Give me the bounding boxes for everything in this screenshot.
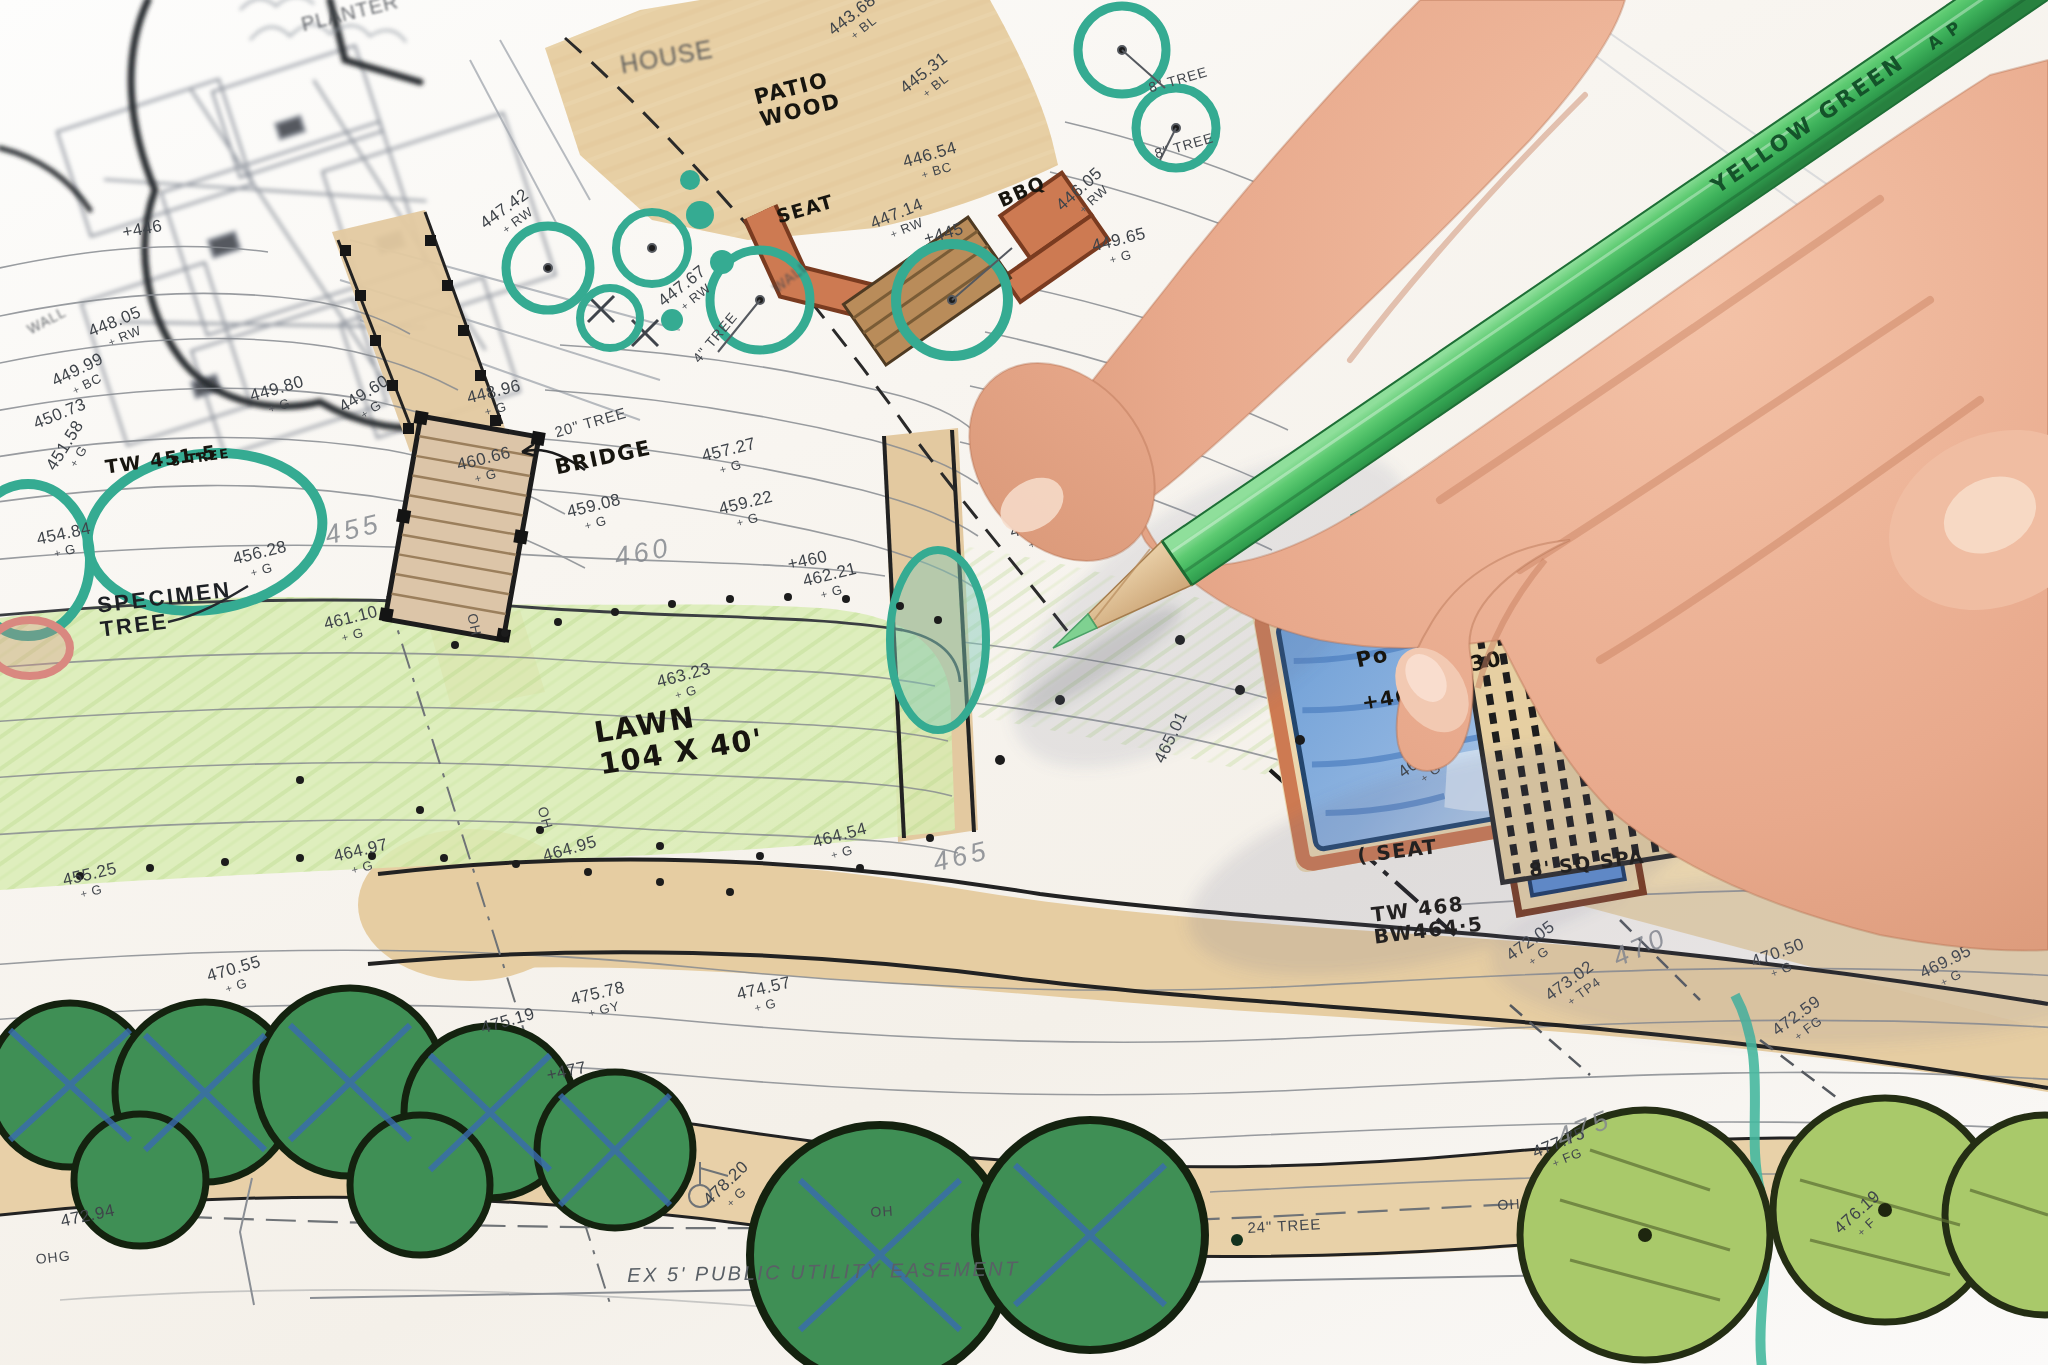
seat-wall	[760, 212, 872, 302]
contour-label: 460	[612, 532, 674, 573]
plan-label: Po	[1354, 643, 1391, 672]
site-plan-drawing	[0, 0, 2048, 1365]
spot-elevation: 475.19	[479, 1004, 537, 1036]
thumb-nail	[1380, 634, 1484, 746]
spot-elevation: 447.42+RW	[477, 186, 540, 244]
spot-elevation: 447.67+RW	[655, 262, 718, 321]
spot-elevation: 449.99+BC	[49, 350, 112, 403]
planter-scallops	[240, 0, 406, 42]
trellis-label-arrow	[1600, 700, 1672, 748]
plan-label: 8" TREE	[1147, 64, 1210, 96]
spot-elevation: 445.31+BL	[897, 49, 960, 108]
contour-label: 475	[1552, 1103, 1617, 1153]
patio-area	[545, 0, 1058, 240]
index-finger	[1015, 0, 1625, 536]
plan-label: ( SEAT	[1356, 835, 1439, 867]
hand-and-pencil: YELLOW GREEN A P	[0, 0, 2048, 1365]
plan-label: LAWN 104 X 40'	[592, 692, 766, 781]
bottom-path-band	[372, 858, 2048, 1092]
spot-elevation: 448.96+G	[465, 377, 526, 421]
path-below-bridge	[430, 610, 545, 710]
plan-label: SEAT	[774, 191, 836, 227]
spot-elevation: 463.71+G	[1395, 735, 1458, 793]
dashed-lines	[140, 38, 2048, 1310]
sheet-edge-lines	[1520, 0, 2048, 390]
spot-elevation: 443.68+BL	[825, 0, 888, 50]
bridge-label-arrow	[522, 444, 585, 470]
spot-elevation: 457.27+G	[700, 434, 761, 478]
spot-elevation: 460.85+G	[1008, 509, 1070, 555]
plan-label: TW 468 BW464·5	[1370, 890, 1485, 947]
spot-elevation: 476.19+F	[1831, 1188, 1893, 1249]
lawn-area	[0, 545, 1335, 890]
pencil-stamp-text: A P	[1923, 16, 1965, 54]
spot-elevation: 477.75+FG	[1530, 1125, 1593, 1175]
plan-label: 8 TREE	[170, 446, 231, 468]
pencil-wood	[1088, 541, 1192, 628]
spot-elevation: 450.73	[31, 396, 88, 432]
pool	[1251, 555, 1598, 874]
spot-elevation: 449.60+G	[336, 372, 400, 428]
fence-x-marks	[588, 296, 658, 346]
path-to-bridge	[332, 210, 505, 452]
spot-elevation: 457.27+G	[1098, 433, 1159, 477]
plan-label: OH	[464, 612, 484, 638]
driveway-lines	[340, 40, 680, 420]
spot-elevation: 454.84+G	[35, 520, 95, 563]
plan-label: TRELLIS 20X10	[1671, 709, 1777, 767]
plan-label: SPECIMEN TREE	[96, 577, 236, 641]
spot-elevation: +477	[545, 1059, 588, 1084]
plan-label: 55 PG	[1563, 0, 1615, 42]
spot-elevation: 459.22+G	[717, 488, 778, 532]
pencil-brand-text: YELLOW GREEN	[1706, 49, 1910, 199]
spot-elevation: +460	[786, 547, 829, 572]
spot-elevation: 472.59+FG	[1769, 993, 1832, 1051]
dark-trees-center	[750, 1120, 1205, 1365]
plan-label: EX 5' PUBLIC UTILITY EASEMENT	[627, 1257, 1020, 1286]
lawn-top-boundary	[0, 600, 960, 682]
spot-elevation: 472.05+G	[1503, 918, 1566, 976]
plan-label: 24" TREE	[1247, 1216, 1322, 1236]
specimen-leader	[168, 586, 248, 622]
spot-elevation: 469.95+G	[1917, 942, 1980, 995]
spa	[1499, 778, 1643, 914]
hedge-row	[0, 988, 693, 1255]
pencil-body	[1162, 0, 2048, 585]
path-bulge	[358, 829, 582, 981]
index-fingertip	[931, 326, 1193, 597]
contour-label: 465	[930, 835, 993, 878]
planting-dots	[76, 593, 1305, 896]
plan-label: PLANTER	[299, 0, 401, 35]
plan-label: OHG	[35, 1248, 71, 1267]
spot-elevation: 462.21+G	[801, 560, 862, 604]
spot-elevation: 447.14+RW	[868, 195, 931, 245]
plan-label: 8" TREE	[1153, 131, 1216, 163]
bridge	[379, 410, 546, 643]
deck-right	[1560, 600, 2048, 1030]
spot-elevation: 465.01	[1151, 708, 1190, 765]
spot-elevation: 456.28+G	[231, 538, 292, 582]
spot-elevation: 470.50+G	[1749, 935, 1812, 984]
palm-and-fingers	[1139, 60, 2048, 951]
spot-elevation: 475.78+GY	[569, 979, 630, 1023]
bbq-counter	[973, 173, 1109, 302]
spot-elevation: 448.05+RW	[86, 303, 149, 353]
plan-label: 4" TREE	[690, 310, 741, 366]
pencil: YELLOW GREEN A P	[1053, 0, 2048, 648]
spot-elevation: 449.80+G	[248, 372, 310, 418]
spot-elevation: 470.55+G	[205, 953, 267, 999]
house-heavy-outline	[0, 0, 448, 428]
pink-shrub	[0, 620, 70, 676]
tree-24-dot	[1231, 1234, 1243, 1246]
spot-elevation: 449.65+G	[1090, 224, 1151, 268]
spot-elevation: 455.25+G	[61, 860, 122, 904]
light-trees	[1520, 1098, 2048, 1360]
spot-elevation: +446	[121, 217, 164, 241]
plan-annotations: PLANTERHOUSEPATIO WOODSEATWALLBBQWALL8" …	[0, 0, 2048, 1365]
trellis	[1461, 582, 1730, 883]
spot-elevation: 446.54+BC	[901, 139, 963, 185]
spot-elevation: 473.02+TP4	[1542, 957, 1605, 1015]
plan-label: BRIDGE	[553, 437, 654, 480]
hedge-x-marks	[10, 1025, 670, 1205]
plan-label: +46	[1360, 684, 1412, 714]
spot-elevation: 446.05+RW	[1053, 164, 1115, 225]
spot-elevation: 461.10+G	[322, 602, 383, 646]
plan-label: TW 451·5	[104, 442, 218, 478]
lower-path-band	[0, 1099, 2048, 1258]
spot-elevation: 463.23+G	[655, 660, 716, 705]
plan-label: HOUSE	[618, 36, 715, 79]
spot-elevation: 478.20+G	[700, 1158, 762, 1219]
finger-creases	[1350, 95, 1980, 660]
pencil-lead	[1053, 614, 1097, 648]
spot-elevation: 472.94	[59, 1202, 116, 1230]
light-trees-hatch	[1560, 1150, 2048, 1300]
vertical-path	[884, 428, 978, 842]
plan-label: OH	[1497, 1197, 1521, 1214]
tree-center-marks	[544, 46, 1180, 352]
thumb	[1397, 540, 1570, 771]
thumb-crease	[1478, 560, 1545, 688]
plan-label: +462·5	[1571, 637, 1663, 677]
contour-label: 455	[322, 509, 385, 552]
photo-landscape-plan-with-hand: PLANTERHOUSEPATIO WOODSEATWALLBBQWALL8" …	[0, 0, 2048, 1365]
spot-elevation: 451.58+G	[43, 417, 99, 481]
spot-elevation: 464.97+G	[332, 835, 393, 879]
dark-trees-x	[800, 1165, 1165, 1330]
path-edges	[0, 212, 2048, 1257]
easement-symbol	[689, 1162, 728, 1207]
plan-label: 30	[1468, 647, 1504, 676]
spot-elevation: 464.95	[541, 832, 599, 864]
plan-label: 20" TREE	[553, 404, 629, 440]
spot-elevation: 474.57+G	[735, 973, 796, 1017]
contour-lines	[0, 122, 2048, 1308]
plan-label: PATIO WOOD	[752, 67, 843, 132]
pinky-nail	[1931, 462, 2048, 568]
pinky-knuckle	[1859, 396, 2048, 643]
plan-label: BBQ	[995, 172, 1049, 211]
patio-steps	[843, 217, 1010, 365]
spot-elevation: +445	[922, 220, 965, 247]
light-trees-dots	[1638, 1203, 1892, 1242]
hand	[1015, 0, 2048, 951]
thumb-nail-highlight	[1397, 646, 1456, 709]
contour-label: 470	[1608, 921, 1673, 973]
house-outline	[28, 0, 586, 512]
plan-label: WALL	[25, 304, 69, 337]
teal-trees	[0, 6, 1436, 730]
teal-stream	[1735, 995, 1766, 1365]
plan-label: OH	[534, 805, 555, 831]
fence-posts	[340, 235, 501, 434]
plan-label: 8' SQ SPA	[1528, 846, 1646, 881]
hand-shadow	[961, 392, 2048, 1045]
spot-elevation: 464.54+G	[811, 820, 872, 865]
spot-elevation: 459.08+G	[565, 490, 626, 534]
teal-shrub-dots	[661, 170, 734, 331]
plan-label: WALL	[770, 258, 812, 296]
plan-label: OH	[870, 1204, 894, 1221]
spot-elevation: 460.66+G	[455, 444, 516, 488]
gripping-fingers	[931, 326, 1570, 770]
index-fingertip-highlight	[990, 467, 1073, 544]
